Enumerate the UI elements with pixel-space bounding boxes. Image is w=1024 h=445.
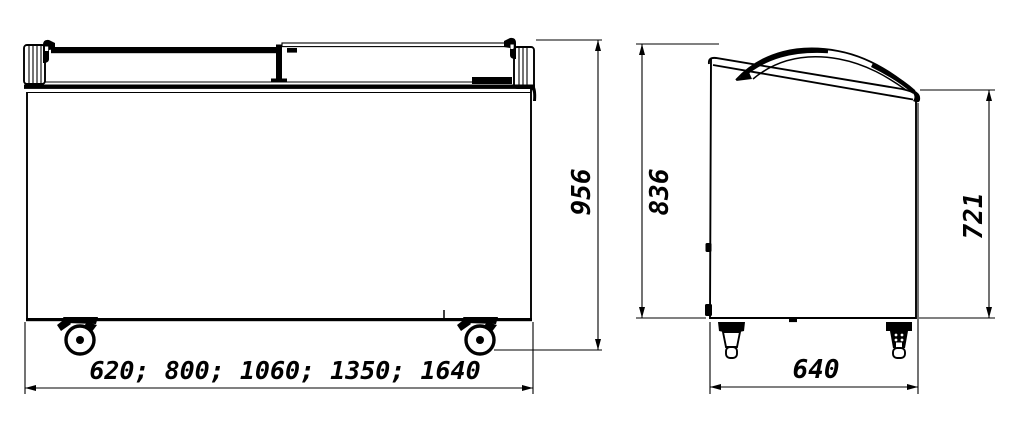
caster-side-left	[718, 322, 745, 358]
caster-front-right	[457, 317, 498, 354]
side-view	[705, 48, 920, 358]
caster-wheel	[726, 347, 737, 358]
dim-arrow	[25, 385, 36, 391]
hinge-upper	[706, 243, 712, 252]
lid-divider	[276, 45, 282, 83]
dim-arrow	[522, 385, 533, 391]
drawing-sheet: 956 620; 800; 1060; 1350; 1640	[0, 0, 1024, 445]
width-dimension: 620; 800; 1060; 1350; 1640	[25, 322, 533, 394]
left-lid-top-bar	[51, 47, 278, 53]
height-dimension-label: 956	[567, 169, 597, 216]
top-rim-bar	[24, 85, 535, 89]
caster-side-right	[886, 322, 912, 358]
right-end-cap	[514, 47, 534, 88]
side-body-outline	[710, 59, 916, 318]
dim-arrow	[710, 384, 721, 390]
front-cabinet-body	[24, 85, 536, 322]
caster-wheel	[893, 348, 905, 358]
front-height-dimension-label: 721	[959, 193, 989, 240]
glass-arc-outer	[736, 48, 915, 92]
side-dimensions: 836 721 640	[636, 44, 995, 394]
dim-arrow	[595, 339, 601, 350]
dim-arrow	[986, 307, 992, 318]
side-cabinet-body	[705, 48, 920, 322]
dim-arrow	[595, 40, 601, 51]
base-mark	[789, 319, 797, 323]
hinge-lower	[705, 304, 712, 316]
caster-hub	[476, 336, 484, 344]
caster-hub	[76, 336, 84, 344]
dim-arrow	[907, 384, 918, 390]
caster-front-left	[57, 317, 98, 354]
depth-dimension-label: 640	[793, 355, 840, 385]
lid-tip	[913, 91, 920, 102]
dim-arrow	[639, 307, 645, 318]
back-height-dimension: 836	[636, 44, 719, 318]
front-lid-assembly	[24, 38, 534, 88]
front-height-dimension: 721	[919, 90, 995, 318]
depth-dimension: 640	[710, 103, 918, 394]
back-height-dimension-label: 836	[645, 169, 675, 216]
front-view	[24, 38, 536, 354]
dim-arrow	[986, 90, 992, 101]
right-lid-grip-mark	[287, 48, 297, 53]
body-bottom-edge	[26, 318, 532, 321]
technical-drawing: 956 620; 800; 1060; 1350; 1640	[0, 0, 1024, 445]
caster-fork	[723, 332, 740, 347]
width-dimension-label: 620; 800; 1060; 1350; 1640	[89, 356, 480, 385]
caster-cap	[886, 322, 912, 331]
dim-arrow	[639, 44, 645, 55]
left-end-cap	[24, 45, 45, 84]
lid-recess-shadow	[472, 77, 512, 84]
right-lid-top-edge	[282, 43, 512, 47]
front-dimensions: 956 620; 800; 1060; 1350; 1640	[25, 40, 602, 394]
